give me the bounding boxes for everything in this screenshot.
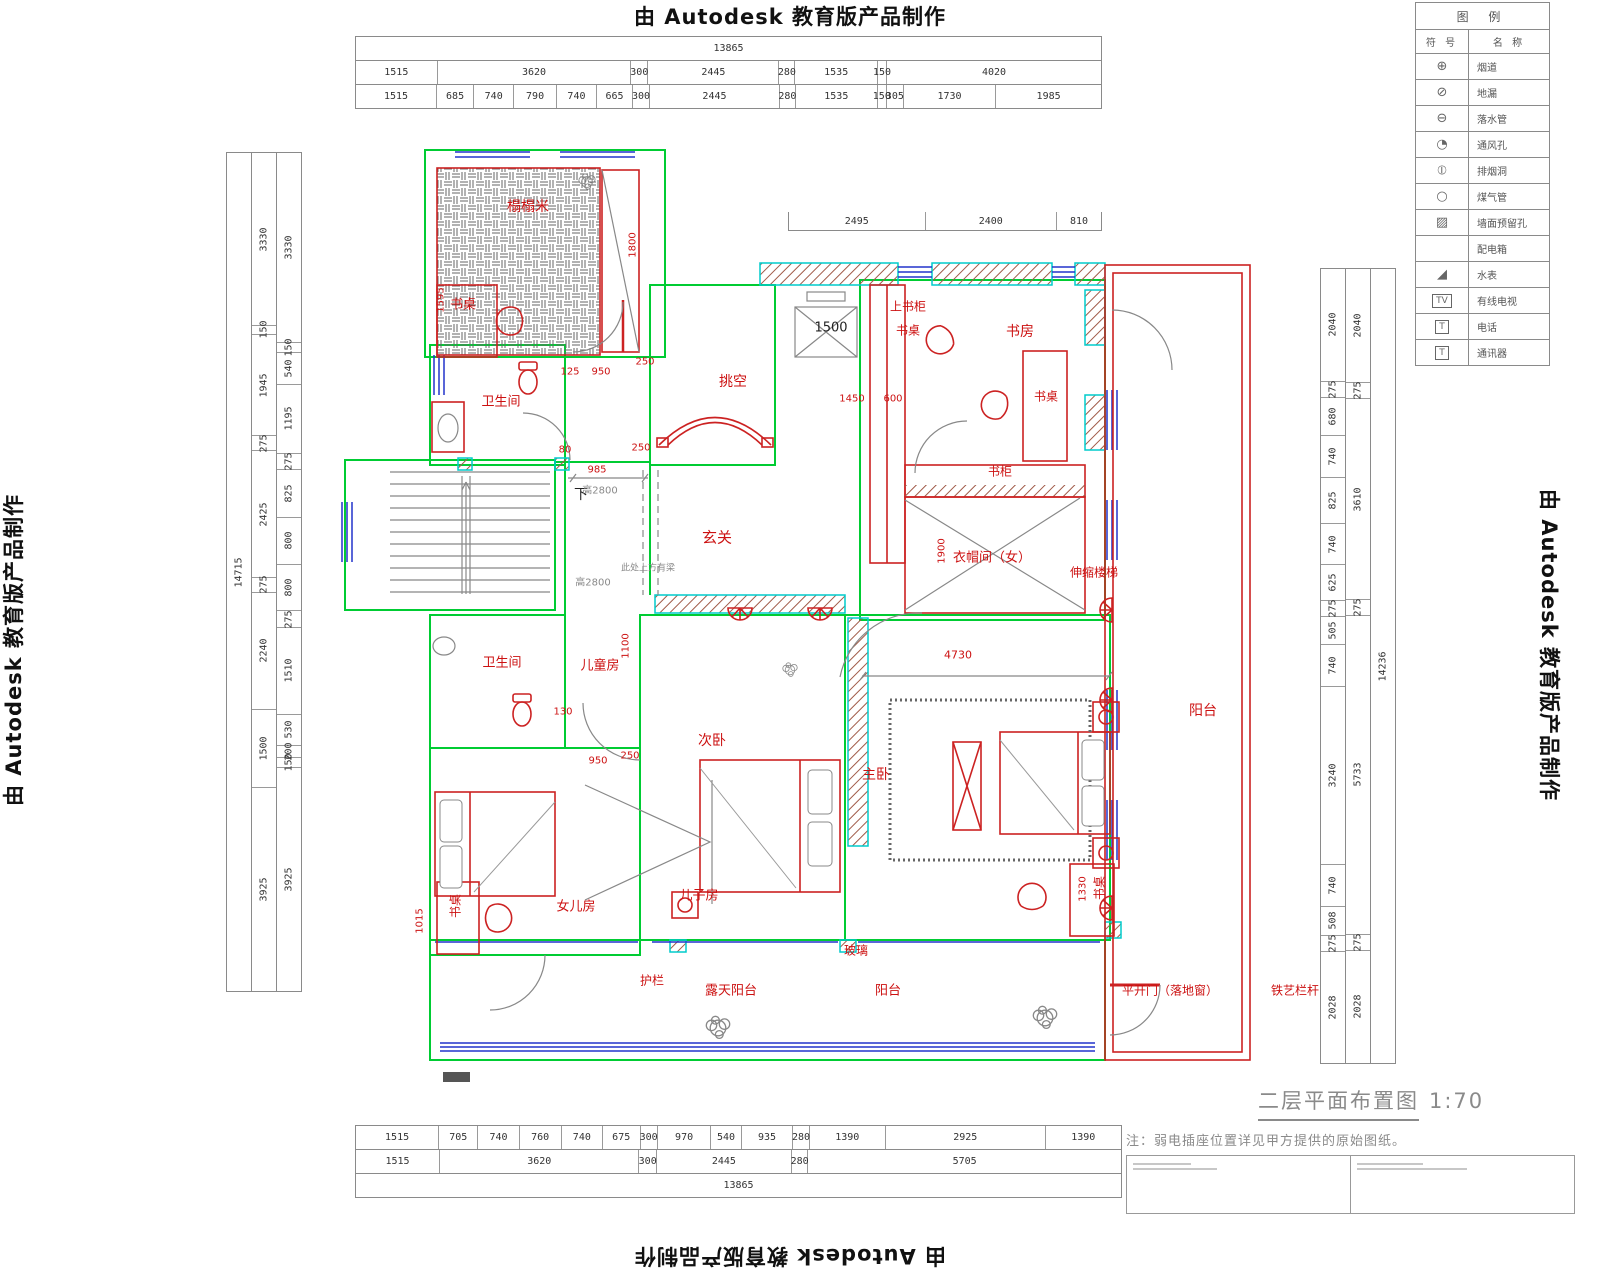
dim-250: 250 [635,357,654,368]
dim-value: 530 [284,721,295,739]
legend-body: ⊕烟道⊘地漏⊖落水管◔通风孔⦶排烟洞○煤气管▨墙面预留孔配电箱◢水表TV有线电视… [1416,54,1549,365]
label-retractable-stair: 伸缩楼梯 [1070,564,1118,581]
legend-row: ◔通风孔 [1416,132,1549,158]
dim-strip-left: 14715 333015019452752425275224015003925 … [226,152,302,992]
dim-col-right-b: 2040275361027557332752028 [1345,269,1370,1063]
dim-600: 600 [883,394,902,405]
dim-value: 1390 [1071,1132,1095,1143]
dim-segment: 4020 [887,61,1101,84]
legend-name: 墙面预留孔 [1469,210,1549,235]
dim-segment: 540 [711,1126,741,1149]
dim-value: 935 [758,1132,776,1143]
legend-col-name: 名 称 [1469,30,1549,53]
dim-col-right-total: 14236 [1370,269,1396,1063]
room-label-balcony-bottom: 阳台 [875,980,901,999]
legend-row: ▨墙面预留孔 [1416,210,1549,236]
dim-col-left-b: 3330150540119527582580080027515105302001… [276,153,302,991]
room-label-second-bedroom: 次卧 [698,730,726,750]
telephone-icon: T [1416,314,1469,339]
dim-value: 3620 [522,67,546,78]
dim-value: 2445 [702,91,726,102]
dim-value: 800 [284,578,295,596]
dim-4730: 4730 [944,649,972,662]
dim-value: 540 [284,359,295,377]
label-beam-note: 此处上方有梁 [621,561,675,574]
room-label-open-balcony: 露天阳台 [705,980,757,999]
vent-hole-icon: ◔ [1436,137,1447,152]
dim-segment: 1945 [252,335,276,436]
dim-segment: 2445 [657,1150,792,1173]
room-label-master-bedroom: 主卧 [862,764,890,784]
legend-row: ⊖落水管 [1416,106,1549,132]
dim-line-4730 [860,672,1112,680]
dim-col-left-total: 14715 [226,153,251,991]
flue-icon: ⊕ [1437,59,1448,74]
label-desk: 书桌 [450,294,476,313]
dim-value: 300 [639,1156,657,1167]
legend-row: T通讯器 [1416,340,1549,365]
dim-value: 13865 [723,1180,753,1191]
dim-segment: 740 [557,85,597,108]
dim-value: 1515 [385,1156,409,1167]
sink-counter [432,402,464,452]
dim-segment: 1515 [356,1126,439,1149]
note-text: 注：弱电插座位置详见甲方提供的原始图纸。 [1126,1130,1406,1149]
dim-row-top-2: 1515685740790740665300244528015351503051… [356,85,1101,109]
dim-segment: 150 [277,343,301,353]
dim-segment: 1390 [1046,1126,1121,1149]
room-label-foyer: 玄关 [702,527,732,548]
dim-value: 3620 [527,1156,551,1167]
legend-row: ◢水表 [1416,262,1549,288]
distribution-box-icon [1416,236,1469,261]
room-label-balcony-right: 阳台 [1189,700,1217,720]
dim-value: 2445 [712,1156,736,1167]
label-desk: 书桌 [447,894,464,918]
dim-value: 1535 [824,91,848,102]
legend-name: 煤气管 [1469,184,1549,209]
water-meter-icon: ◢ [1437,267,1447,282]
title-block-cell-left [1127,1156,1351,1213]
dim-segment: 2925 [886,1126,1046,1149]
legend-col-symbol: 符 号 [1416,30,1469,53]
dim-strip-right: 2040275680740825740625275505740324074050… [1320,268,1396,1064]
dim-segment: 705 [439,1126,478,1149]
iron-railing-outline [1105,265,1250,1060]
smoke-vent-icon: ⦶ [1416,158,1469,183]
legend-name: 排烟洞 [1469,158,1549,183]
dim-segment: 275 [1346,600,1370,616]
legend-row: ⦶排烟洞 [1416,158,1549,184]
dim-strip-top: 13865 15153620300244528015351504020 1515… [355,36,1102,109]
cable-tv-icon: TV [1432,294,1452,308]
dim-segment: 540 [277,353,301,385]
title-block [1126,1155,1575,1214]
dim-250: 250 [620,751,639,762]
plant-icon [783,663,797,677]
label-upper-bookcase: 上书柜 [890,298,926,315]
dim-segment: 280 [793,1126,809,1149]
arch [659,418,771,446]
dim-value: 675 [612,1132,630,1143]
legend-name: 落水管 [1469,106,1549,131]
legend-name: 通讯器 [1469,340,1549,365]
legend-name: 有线电视 [1469,288,1549,313]
dim-value: 14715 [234,557,245,587]
dim-value: 275 [259,434,270,452]
floor-plan-canvas [340,140,1330,1085]
label-desk: 书桌 [896,322,920,339]
intercom-icon: T [1435,346,1449,360]
dim-segment: 300 [639,1150,656,1173]
dim-value: 305 [886,91,904,102]
label-desk: 书桌 [1091,876,1108,900]
legend-title: 图 例 [1416,3,1549,30]
toilet [513,694,531,726]
dim-segment: 275 [277,454,301,471]
dim-segment: 1195 [277,385,301,454]
legend-row: ⊘地漏 [1416,80,1549,106]
vent-hole-icon: ◔ [1416,132,1469,157]
room-label-cloakroom: 衣帽间（女） [953,547,1031,566]
dim-row-top-total: 13865 [356,36,1101,61]
dim-value: 275 [1353,933,1364,951]
dim-segment: 3925 [252,788,276,991]
door-arc [490,955,545,1010]
dim-value: 300 [632,91,650,102]
dim-segment: 305 [887,85,904,108]
dim-value: 1500 [259,736,270,760]
dim-segment: 2040 [1346,269,1370,383]
dim-1100: 1100 [621,633,632,658]
legend-header: 符 号 名 称 [1416,30,1549,54]
dim-value: 1535 [824,67,848,78]
chair [1018,883,1046,909]
dim-segment: 685 [437,85,474,108]
dim-value: 825 [284,485,295,503]
dim-value: 280 [778,91,796,102]
dim-value: 2425 [259,502,270,526]
drawing-scale: 1:70 [1429,1089,1484,1113]
dim-value: 2240 [259,639,270,663]
walls-hatched [458,263,1121,952]
blankets [474,740,1074,892]
dim-value: 705 [449,1132,467,1143]
legend-row: TV有线电视 [1416,288,1549,314]
label-height-2800: 高2800 [575,574,610,589]
watermark-top: 由 Autodesk 教育版产品制作 [634,1,946,31]
dim-segment: 13865 [356,37,1101,60]
dim-value: 740 [573,1132,591,1143]
legend-name: 地漏 [1469,80,1549,105]
dim-segment: 740 [474,85,514,108]
dim-1015: 1015 [415,908,426,933]
downpipe-icon: ⊖ [1416,106,1469,131]
dim-value: 3330 [284,236,295,260]
dim-985: 985 [587,465,606,476]
dim-segment: 280 [780,85,796,108]
dim-value: 1515 [385,1132,409,1143]
dim-segment: 2445 [650,85,780,108]
dim-value: 3330 [259,227,270,251]
dim-segment: 665 [597,85,633,108]
dim-value: 3925 [284,867,295,891]
gas-pipe-icon: ○ [1436,189,1447,204]
dim-segment: 800 [277,518,301,565]
dim-segment: 3610 [1346,399,1370,600]
legend-name: 通风孔 [1469,132,1549,157]
dim-segment: 5705 [808,1150,1121,1173]
legend-row: ○煤气管 [1416,184,1549,210]
dim-segment: 1730 [904,85,996,108]
dim-value: 1515 [384,91,408,102]
watermark-left: 由 Autodesk 教育版产品制作 [0,494,28,806]
dim-segment: 2445 [648,61,779,84]
dim-value: 275 [1353,599,1364,617]
watermark-right: 由 Autodesk 教育版产品制作 [1535,489,1565,801]
cable-tv-icon: TV [1416,288,1469,313]
floor-drain-icon: ⊘ [1437,85,1448,100]
dim-row-bottom-total: 13865 [356,1174,1121,1198]
intercom-icon: T [1416,340,1469,365]
plant-icon [706,1016,729,1038]
dim-value: 740 [567,91,585,102]
dim-value: 275 [284,452,295,470]
dim-segment: 300 [641,1126,658,1149]
dim-value: 1945 [259,373,270,397]
wall-solid-block [443,1072,470,1082]
dim-value: 540 [717,1132,735,1143]
legend-name: 烟道 [1469,54,1549,79]
dim-value: 4020 [982,67,1006,78]
smoke-vent-icon: ⦶ [1437,163,1446,178]
room-label-daughter-room: 女儿房 [556,896,595,915]
dim-value: 280 [778,67,796,78]
dim-value: 800 [284,532,295,550]
dim-segment: 2028 [1346,951,1370,1063]
dim-segment: 3620 [440,1150,639,1173]
wall-reserved-hole-icon: ▨ [1436,215,1448,230]
dim-1900: 1900 [937,538,948,563]
room-label-kids-room: 儿童房 [580,655,619,674]
dim-value: 1985 [1037,91,1061,102]
floor-plan [340,140,1330,1085]
dim-130: 130 [553,707,572,718]
toilet [519,362,537,394]
telephone-icon: T [1435,320,1449,334]
dim-segment: 2425 [252,451,276,577]
dim-row-bottom-2: 1515362030024452805705 [356,1150,1121,1174]
downpipe-icon: ⊖ [1437,111,1448,126]
legend-row: T电话 [1416,314,1549,340]
dim-1800: 1800 [628,232,639,257]
dim-value: 1195 [284,407,295,431]
sink [438,414,458,442]
dim-segment: 935 [742,1126,794,1149]
dim-row-top-1: 15153620300244528015351504020 [356,61,1101,85]
room-label-bathroom-upper: 卫生间 [481,391,520,410]
dim-segment: 1515 [356,1150,440,1173]
dim-segment: 1515 [356,61,438,84]
dim-value: 3610 [1353,487,1364,511]
dim-segment: 150 [277,758,301,768]
label-height-2800: 高2800 [582,482,617,497]
dim-segment: 825 [277,470,301,518]
room-label-study: 书房 [1006,321,1034,341]
gas-pipe-icon: ○ [1416,184,1469,209]
dim-segment: 275 [1346,383,1370,399]
dim-1450: 1450 [839,394,864,405]
carpet [890,700,1090,860]
drawing-title: 二层平面布置图 1:70 [1258,1085,1484,1121]
dim-value: 300 [630,67,648,78]
dim-value: 280 [791,1156,809,1167]
dim-segment: 530 [277,715,301,746]
dim-segment: 3925 [277,768,301,991]
legend-row: ⊕烟道 [1416,54,1549,80]
dim-value: 5733 [1353,763,1364,787]
dim-segment: 150 [878,61,887,84]
cad-drawing-page: { "watermark": { "text": "由 Autodesk 教育版… [0,0,1600,1280]
dim-segment: 1985 [996,85,1101,108]
chair [486,904,512,932]
dim-segment: 3330 [252,153,276,326]
dim-segment: 275 [252,436,276,451]
legend-table: 图 例 符 号 名 称 ⊕烟道⊘地漏⊖落水管◔通风孔⦶排烟洞○煤气管▨墙面预留孔… [1415,2,1550,366]
dim-segment: 14236 [1371,269,1395,1063]
dim-value: 760 [531,1132,549,1143]
title-block-cell-right [1351,1156,1574,1213]
dim-segment: 275 [1346,935,1370,951]
room-label-bathroom-lower: 卫生间 [482,652,521,671]
water-meter-icon: ◢ [1416,262,1469,287]
floor-drain-icon: ⊘ [1416,80,1469,105]
label-desk: 书桌 [1034,388,1058,405]
label-iron-railing: 铁艺栏杆 [1271,982,1319,999]
dim-strip-bottom: 1515705740760740675300970540935280139029… [355,1125,1122,1198]
dim-segment: 740 [478,1126,519,1149]
dim-segment: 5733 [1346,616,1370,934]
dim-segment: 13865 [356,1174,1121,1197]
legend-name: 配电箱 [1469,236,1549,261]
dim-segment: 800 [277,565,301,612]
dim-950: 950 [588,756,607,767]
dim-value: 2040 [1353,313,1364,337]
dim-segment: 1535 [796,85,878,108]
dim-segment: 3330 [277,153,301,343]
legend-row: 配电箱 [1416,236,1549,262]
dim-1595: 1595 [436,287,447,312]
dim-value: 2925 [953,1132,977,1143]
dim-segment: 300 [633,85,650,108]
dim-segment: 275 [277,611,301,628]
dim-segment: 1500 [252,710,276,789]
dim-segment: 1510 [277,628,301,715]
dim-segment: 275 [252,578,276,593]
dim-250: 250 [631,443,650,454]
dim-segment: 675 [603,1126,641,1149]
dim-value: 150 [259,321,270,339]
dim-segment: 150 [252,326,276,335]
room-label-void: 挑空 [719,371,747,391]
dim-value: 740 [485,91,503,102]
dim-value: 3925 [259,878,270,902]
legend-name: 水表 [1469,262,1549,287]
dim-value: 5705 [953,1156,977,1167]
flue-icon: ⊕ [1416,54,1469,79]
plant-icon [1033,1006,1056,1028]
chair [921,321,958,359]
dim-segment: 970 [658,1126,712,1149]
label-bookcase: 书柜 [988,463,1012,480]
chair [978,388,1011,422]
dim-segment: 1390 [810,1126,886,1149]
dim-value: 14236 [1378,651,1389,681]
dim-segment: 280 [779,61,795,84]
dim-80: 80 [559,445,572,456]
dim-1500-elevator: 1500 [814,321,847,336]
dim-row-bottom-1: 1515705740760740675300970540935280139029… [356,1125,1121,1150]
dim-value: 2445 [701,67,725,78]
dim-value: 275 [259,576,270,594]
dim-segment: 1535 [795,61,878,84]
dim-value: 150 [284,339,295,357]
dim-segment: 760 [520,1126,562,1149]
nightstand [1093,702,1119,732]
dim-segment: 280 [792,1150,808,1173]
dim-value: 280 [792,1132,810,1143]
study-desk [1023,351,1067,461]
dim-value: 1515 [384,67,408,78]
watermark-bottom: 由 Autodesk 教育版产品制作 [634,1242,946,1272]
dim-value: 300 [640,1132,658,1143]
dim-value: 1390 [835,1132,859,1143]
legend-name: 电话 [1469,314,1549,339]
dim-segment: 14715 [227,153,251,991]
dim-125: 125 [560,367,579,378]
dim-segment: 3620 [438,61,632,84]
label-glass: 玻璃 [844,942,868,959]
dim-value: 685 [446,91,464,102]
sink [433,637,455,655]
dim-value: 665 [606,91,624,102]
room-label-tatami: 榻榻米 [507,196,549,216]
dim-value: 790 [526,91,544,102]
pillows [440,740,1104,888]
dim-segment: 300 [631,61,648,84]
dim-segment: 740 [562,1126,603,1149]
dim-value: 1730 [937,91,961,102]
label-guardrail: 护栏 [640,972,664,989]
dim-950: 950 [591,367,610,378]
label-casement-door: 平开门（落地窗） [1122,982,1218,999]
dim-1330: 1330 [1078,876,1089,901]
dim-value: 2028 [1353,995,1364,1019]
dim-value: 13865 [713,43,743,54]
dim-value: 150 [284,753,295,771]
room-label-son-room: 儿子房 [679,885,718,904]
drawing-title-text: 二层平面布置图 [1258,1085,1419,1121]
door-arc [1112,310,1172,370]
dim-segment: 1515 [356,85,437,108]
dim-value: 740 [489,1132,507,1143]
dim-value: 1510 [284,659,295,683]
dim-value: 275 [1353,382,1364,400]
dim-value: 970 [675,1132,693,1143]
dim-segment: 2240 [252,593,276,710]
dim-value: 275 [284,610,295,628]
dim-col-left-a: 333015019452752425275224015003925 [251,153,276,991]
